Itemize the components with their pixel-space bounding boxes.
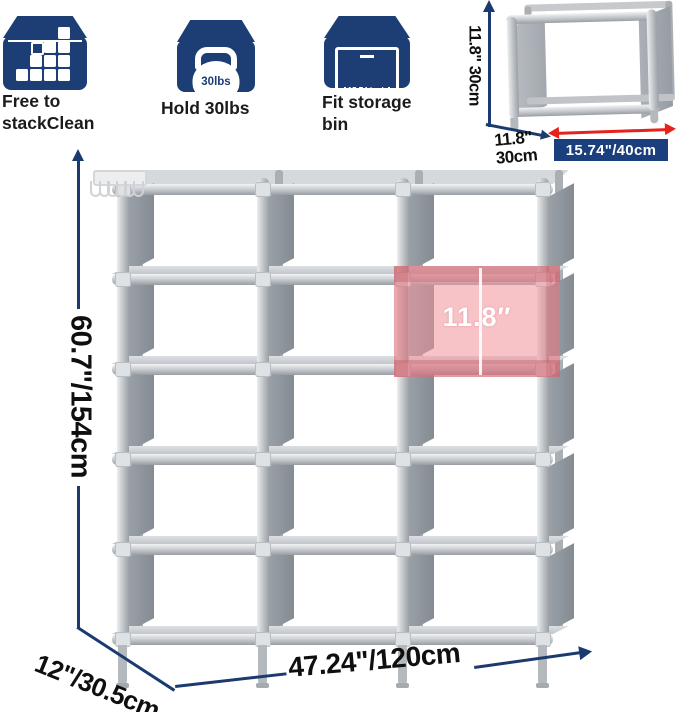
shelf-connector [115, 362, 131, 377]
shelf-fabric-panel [268, 273, 294, 362]
shelf-connector [255, 272, 271, 287]
shelf-connector [395, 182, 411, 197]
height-dimension-line-lower [77, 486, 80, 628]
pink-tint-top [394, 266, 560, 282]
shelf-fabric-panel [408, 543, 434, 632]
shelf-board [112, 446, 569, 454]
shelf-front-tube [112, 544, 553, 555]
shelf-structure [0, 0, 679, 712]
shelf-board [112, 626, 569, 634]
shelf-fabric-panel [548, 183, 574, 272]
shelf-fabric-panel [408, 453, 434, 542]
shelf-connector [255, 542, 271, 557]
shelf-top-face [112, 170, 569, 184]
shelf-foot [538, 645, 547, 685]
shelf-foot [258, 645, 267, 685]
shelf-fabric-panel [268, 363, 294, 452]
shelf-fabric-panel [128, 543, 154, 632]
shelf-fabric-panel [268, 543, 294, 632]
pink-tint-bottom [394, 360, 560, 377]
shelf-fabric-panel [268, 183, 294, 272]
shelf-fabric-panel [548, 453, 574, 542]
shelf-fabric-panel [128, 273, 154, 362]
shelf-front-post [257, 178, 269, 645]
shelf-front-tube [112, 454, 553, 465]
shelf-connector [115, 272, 131, 287]
shelf-connector [535, 452, 551, 467]
shelf-connector [395, 542, 411, 557]
highlighted-cube-cell: 11.8″ [394, 266, 560, 377]
shelf-foot-cap [536, 683, 549, 688]
shelf-front-post [117, 178, 129, 645]
shelf-board [112, 536, 569, 544]
shelf-fabric-panel [128, 363, 154, 452]
shelf-front-post [397, 178, 409, 645]
hooks-icon [83, 168, 153, 204]
shelf-connector [255, 452, 271, 467]
shelf-connector [255, 182, 271, 197]
shelf-front-post [537, 178, 549, 645]
shelf-front-tube [112, 184, 553, 195]
shelf-fabric-panel [548, 543, 574, 632]
product-dimension-diagram: Free to stackClean 30lbs Hold 30lbs 15.7… [0, 0, 679, 712]
shelf-foot-cap [396, 683, 409, 688]
height-label: 60.7"/154cm [64, 287, 97, 507]
hook-icon [133, 181, 144, 197]
shelf-foot-cap [256, 683, 269, 688]
shelf-front-tube [112, 634, 553, 645]
shelf-connector [535, 542, 551, 557]
shelf-connector [395, 452, 411, 467]
cell-height-label: 11.8″ [394, 302, 560, 333]
height-dimension-arrowhead [72, 149, 84, 161]
shelf-connector [255, 362, 271, 377]
shelf-fabric-panel [408, 183, 434, 272]
shelf-fabric-panel [268, 453, 294, 542]
shelf-connector [535, 182, 551, 197]
shelf-connector [115, 542, 131, 557]
hook-rack [83, 168, 153, 204]
shelf-connector [115, 452, 131, 467]
shelf-fabric-panel [128, 453, 154, 542]
